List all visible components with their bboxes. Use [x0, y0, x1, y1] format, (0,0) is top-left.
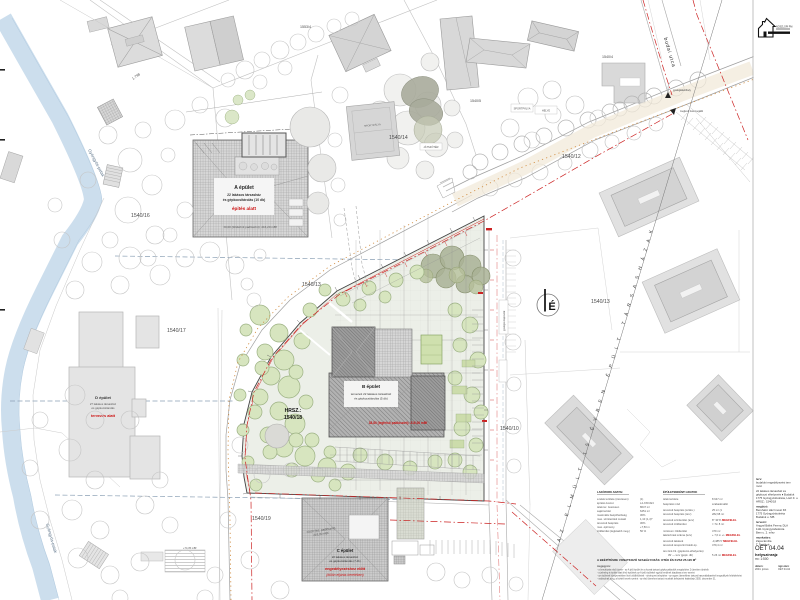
svg-text:1553/4: 1553/4: [300, 25, 311, 29]
svg-text:tervezett terepszint feletti é: tervezett terepszint feletti ép.: [663, 543, 698, 547]
svg-text:(külön eljárás keretében): (külön eljárás keretében): [326, 573, 363, 577]
svg-text:Bem u. 2. mfsz: Bem u. 2. mfsz: [756, 531, 775, 535]
svg-text:1540/17: 1540/17: [167, 328, 186, 334]
svg-text:saját terület: saját terület: [597, 509, 611, 513]
svg-text:gyalogos kapcsolat: gyalogos kapcsolat: [503, 310, 506, 331]
svg-text:1540/4: 1540/4: [602, 55, 613, 59]
svg-text:É: É: [548, 300, 555, 313]
svg-text:+7,50 m: +7,50 m: [640, 525, 651, 529]
svg-text:1540/18: 1540/18: [284, 415, 302, 421]
svg-text:C épület: C épület: [337, 548, 354, 553]
svg-text:tervezett beépítés (terv): tervezett beépítés (terv): [663, 512, 691, 516]
svg-text:25 m² (1: 25 m² (1: [712, 508, 723, 512]
svg-text:és gépkocsitárolás (5 db): és gépkocsitárolás (5 db): [354, 397, 388, 401]
svg-text:1540/16: 1540/16: [131, 213, 150, 219]
svg-text:D épület: D épület: [95, 395, 111, 400]
svg-text:tervezett 22 lakásos társasház: tervezett 22 lakásos társasház: [351, 392, 392, 396]
svg-text:maximális beépíthetőség: maximális beépíthetőség: [597, 513, 627, 517]
svg-text:telek ter. összesen: telek ter. összesen: [597, 505, 620, 509]
svg-text:1540/13: 1540/13: [591, 299, 610, 305]
svg-text:engedélyezéshez előtt: engedélyezéshez előtt: [325, 567, 366, 571]
svg-text:A BEÉPÍTÉSRE VONATKOZÓ SZABÁLY: A BEÉPÍTÉSRE VONATKOZÓ SZABÁLYOZÁS: OTÉK…: [597, 557, 696, 562]
svg-text:- a beruházás első üteme - az: - a beruházás első üteme - az A jelű épü…: [597, 569, 710, 572]
svg-text:- a jelenleg is építés alatt l: - a jelenleg is építés alatt lévő épület…: [597, 572, 695, 575]
svg-text:NOSZLOPI PM: NOSZLOPI PM: [776, 26, 792, 29]
svg-text:+ 7,6 m +/- MEGFELEL: + 7,6 m +/- MEGFELEL: [712, 533, 741, 537]
svg-text:8° 30'% MEGFELEL: 8° 30'% MEGFELEL: [712, 518, 737, 522]
svg-text:479,4 m²: 479,4 m²: [712, 543, 723, 547]
svg-text:6451 m²: 6451 m²: [640, 509, 650, 513]
svg-text:282,68 m²: 282,68 m²: [712, 512, 724, 516]
svg-text:479 m²: 479 m²: [712, 529, 720, 533]
svg-text:8647 m²: 8647 m²: [640, 505, 650, 509]
svg-text:2004. június: 2004. június: [755, 568, 769, 571]
svg-text:Budafok u. 5/B: Budafok u. 5/B: [756, 515, 774, 519]
svg-text:beépítési mód: beépítési mód: [663, 502, 680, 506]
svg-text:tervezett szintterület (terv): tervezett szintterület (terv): [663, 518, 694, 522]
svg-text:OÉT 04.04: OÉT 04.04: [778, 568, 791, 571]
svg-text:zöldterület (legkisebb meg.): zöldterület (legkisebb meg.): [597, 529, 630, 533]
svg-text:és gépkocsitárolás (7 db): és gépkocsitárolás (7 db): [329, 559, 360, 563]
svg-text:SPORTPÁLYA: SPORTPÁLYA: [514, 107, 531, 111]
svg-text:szabadonálló: szabadonálló: [712, 502, 728, 506]
svg-text:1,10 (1,4)*: 1,10 (1,4)*: [640, 517, 653, 521]
svg-text:-0,485 5' MEGFELEL: -0,485 5' MEGFELEL: [712, 539, 738, 543]
svg-text:a telek területe (összesen): a telek területe (összesen): [597, 497, 629, 501]
svg-text:1540/12: 1540/12: [562, 154, 581, 160]
svg-text:terv.önk.19. (gépkocsi-elhelye: terv.önk.19. (gépkocsi-elhelyezés): [663, 549, 704, 553]
svg-text:építési övezet: építési övezet: [597, 501, 614, 505]
svg-text:8 647 m²: 8 647 m²: [712, 497, 723, 501]
svg-text:telek területe: telek területe: [663, 497, 679, 501]
svg-text:max. szintterületi mutató: max. szintterületi mutató: [597, 517, 627, 521]
svg-text:30%: 30%: [640, 521, 646, 525]
svg-text:meglévő buszmegálló: meglévő buszmegálló: [680, 110, 704, 113]
svg-text:minimum zöldterület: minimum zöldterület: [663, 529, 687, 533]
svg-text:tervezett beépítés (szüks.): tervezett beépítés (szüks.): [663, 508, 695, 512]
svg-text:HRSZ.: 1540/18: HRSZ.: 1540/18: [756, 500, 776, 504]
svg-text:tervezett lakások: tervezett lakások: [663, 539, 684, 543]
svg-text:50 %: 50 %: [640, 529, 647, 533]
svg-text:mód.: mód.: [756, 484, 762, 488]
svg-text:1540/13: 1540/13: [302, 282, 321, 288]
svg-text:megjegyzés:: megjegyzés:: [597, 566, 611, 568]
svg-text:30%: 30%: [640, 513, 646, 517]
svg-text:±0,00 (földszinti padlószint):: ±0,00 (földszinti padlószint): 216,20 mB…: [223, 225, 277, 229]
svg-text:gyalogátkelőhely: gyalogátkelőhely: [673, 89, 692, 92]
svg-text:- valósulnak meg, a kiviteli t: - valósulnak meg, a kiviteli tervek szer…: [597, 578, 716, 581]
svg-text:lakószintek száma (terv): lakószintek száma (terv): [663, 533, 692, 537]
svg-text:1540/14: 1540/14: [389, 135, 408, 141]
svg-text:tervezett beépítés: tervezett beépítés: [597, 521, 619, 525]
svg-text:tervezett zöldterület: tervezett zöldterület: [663, 522, 687, 526]
svg-text:A épület: A épület: [234, 185, 254, 191]
svg-text:1540/19: 1540/19: [252, 516, 271, 522]
svg-text:5 26 m² MEGFELEL: 5 26 m² MEGFELEL: [712, 553, 737, 557]
svg-text:39' — terv (gépk. db): 39' — terv (gépk. db): [668, 553, 693, 557]
svg-text:HRSZ.:: HRSZ.:: [285, 408, 302, 414]
svg-text:38,80 (legfelső padlószint): 2: 38,80 (legfelső padlószint): 216,00 mBf: [369, 421, 428, 425]
svg-text:= 7m 8 m²: = 7m 8 m²: [712, 522, 724, 526]
svg-text:és gépkocsitárolás: és gépkocsitárolás: [91, 406, 115, 410]
svg-text:m= 1:500: m= 1:500: [755, 557, 769, 561]
svg-text:B épület: B épület: [362, 384, 381, 389]
svg-text:22 lakásos társasház: 22 lakásos társasház: [227, 193, 261, 197]
svg-text:- az épületek környezetében lé: - az épületek környezetében lévő zöldfel…: [597, 575, 742, 578]
svg-text:max. építmény: max. építmény: [597, 525, 615, 529]
svg-text:HELYE: HELYE: [542, 109, 551, 113]
svg-text:+74,35 mBf: +74,35 mBf: [183, 546, 197, 550]
svg-text:1540/5: 1540/5: [470, 99, 481, 103]
svg-text:(1): (1): [640, 497, 643, 501]
svg-text:épités alatt: épités alatt: [232, 206, 256, 211]
svg-text:és gépkocsitárolás (10 db): és gépkocsitárolás (10 db): [223, 198, 266, 202]
svg-text:1540/10: 1540/10: [500, 426, 519, 432]
svg-text:L4-XXII/AI3: L4-XXII/AI3: [640, 501, 654, 505]
svg-text:OÉT 04.04: OÉT 04.04: [755, 545, 785, 552]
